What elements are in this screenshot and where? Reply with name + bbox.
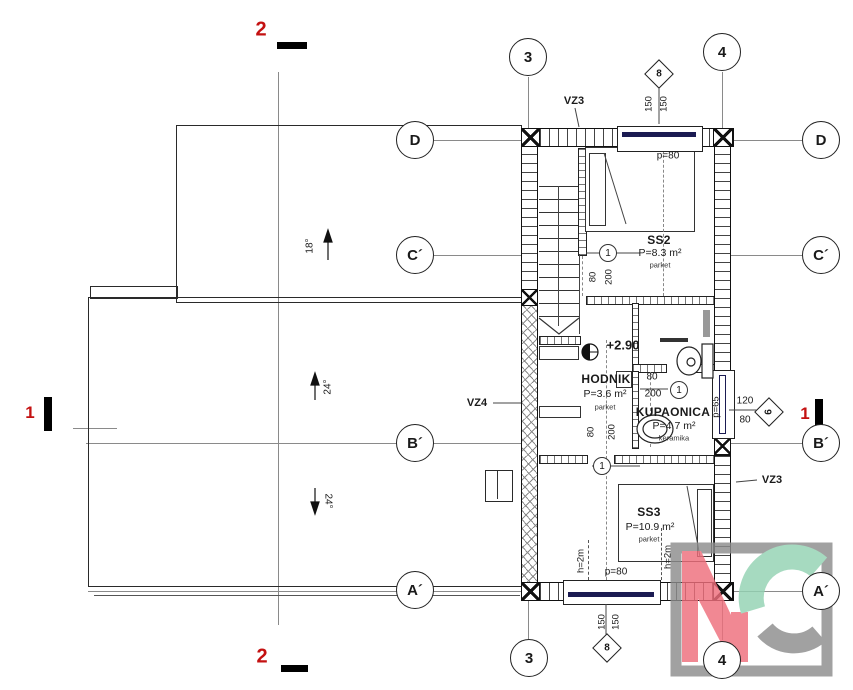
partition-ss3-north-b [614, 455, 716, 464]
dim-150-top-b: 150 [659, 96, 670, 112]
stair-edge-line [579, 254, 580, 334]
grid-bubble-C-right: C´ [802, 236, 840, 274]
grid-bubble-C-left: C´ [396, 236, 434, 274]
partition-ss2-south [586, 296, 716, 305]
door-mark-1-kupaonica: 1 [670, 381, 688, 399]
window-mark-label: 8 [650, 65, 669, 84]
staircase-centerline [558, 186, 559, 326]
grid-bubble-A-left: A´ [396, 571, 434, 609]
wall-junction-w [521, 289, 538, 306]
grid-bubble-label: 3 [525, 650, 533, 667]
wall-west-stone-vz4 [521, 304, 538, 584]
grid-bubble-label: 4 [718, 652, 726, 669]
wall-west-upper [521, 146, 538, 291]
grid-bubble-label: C´ [813, 247, 829, 264]
chimney-box [485, 470, 513, 502]
room-floor-hodnik: parket [595, 403, 616, 412]
chimney-divider [497, 471, 498, 499]
staircase-treads [539, 186, 579, 322]
wall-label-vz3-right: VZ3 [762, 474, 782, 486]
slope-label-24-top: 24° [323, 379, 334, 394]
grid-bubble-4-bottom: 4 [703, 641, 741, 679]
window-top [617, 126, 703, 152]
room-name-kupaonica: KUPAONICA [636, 405, 710, 419]
window-top-glass-band [622, 132, 696, 137]
h2m-line-left [588, 540, 589, 580]
dim-150-bottom-b: 150 [611, 614, 622, 630]
window-mark-8-bottom: 8 [592, 633, 622, 663]
window-mark-label: 8 [598, 639, 617, 658]
roof-outline-upper [176, 125, 522, 303]
room-area-ss2: P=8.3 m² [639, 247, 682, 259]
section-2-label-bottom: 2 [256, 646, 267, 669]
roof-eave-line [94, 595, 520, 596]
grid-bubble-A-right: A´ [802, 572, 840, 610]
hodnik-cabinet-a [539, 346, 579, 360]
wall-east-lower [714, 455, 731, 584]
grid-bubble-3-top: 3 [509, 38, 547, 76]
partition-ss3-north-a [539, 455, 588, 464]
grid-bubble-label: 3 [524, 49, 532, 66]
section-2-label-top: 2 [255, 19, 266, 42]
section-1-label-left: 1 [25, 403, 34, 423]
section-1-tick-left [44, 397, 52, 431]
room-name-ss3: SS3 [637, 505, 661, 519]
axis-window-top [663, 150, 664, 296]
floor-plan-canvas: 2 2 1 1 3 4 3 4 D D C´ C´ B´ B´ A´ A´ 8 … [0, 0, 853, 690]
dim-120-right: 120 [737, 396, 754, 407]
bed-ss3-pillow [697, 489, 712, 557]
dim-door-ss2-width: 80 [588, 272, 599, 283]
bed-ss2-pillow [589, 153, 606, 226]
grid-bubble-B-right: B´ [802, 424, 840, 462]
window-mark-label: 6 [760, 403, 779, 422]
wall-junction-nw [521, 128, 540, 147]
window-mark-8-top: 8 [644, 59, 674, 89]
hodnik-cabinet-b [539, 406, 581, 418]
dim-h2m-right: h=2m [663, 545, 674, 569]
wall-junction-sw [521, 582, 540, 601]
section-2-tick-top [277, 42, 307, 49]
grid-bubble-4-top: 4 [703, 33, 741, 71]
dim-door-ss3-width: 80 [586, 427, 597, 438]
window-bottom-glass-band [568, 592, 654, 597]
roof-outline-lower [88, 297, 522, 587]
logo-letter-c-bottom [765, 630, 819, 643]
door-mark-label: 1 [605, 248, 611, 259]
dim-h2m-left: h=2m [576, 549, 587, 573]
grid-bubble-label: C´ [407, 247, 423, 264]
dim-door-bath-width: 80 [646, 372, 657, 383]
grid-bubble-label: 4 [718, 44, 726, 61]
door-mark-1-ss3: 1 [593, 457, 611, 475]
section-2-tick-bottom [281, 665, 308, 672]
room-floor-ss3: parket [639, 535, 660, 544]
dim-door-ss2-height: 200 [604, 269, 615, 285]
dim-parapet-right: p=65 [711, 396, 722, 417]
grid-bubble-B-left: B´ [396, 424, 434, 462]
door-mark-label: 1 [599, 461, 605, 472]
door-mark-label: 1 [676, 385, 682, 396]
wall-junction-e [714, 437, 731, 455]
section-1-label-right: 1 [800, 404, 809, 424]
grid-bubble-label: D [816, 132, 827, 149]
elevation-label: +2.90 [607, 338, 640, 353]
door-ss2-swing-axis [582, 256, 583, 296]
grid-bubble-D-left: D [396, 121, 434, 159]
grid-bubble-label: A´ [407, 582, 423, 599]
wall-label-vz4: VZ4 [467, 397, 487, 409]
room-name-ss2: SS2 [647, 233, 671, 247]
door-mark-1-ss2: 1 [599, 244, 617, 262]
window-mark-6-right: 6 [754, 397, 784, 427]
dim-parapet-top: p=80 [657, 151, 680, 162]
wall-label-vz3-top: VZ3 [564, 95, 584, 107]
slope-label-24-bottom: 24° [323, 493, 334, 508]
grid-bubble-label: B´ [813, 435, 829, 452]
grid-bubble-label: B´ [407, 435, 423, 452]
grid-bubble-D-right: D [802, 121, 840, 159]
shower-partition-bar [660, 338, 688, 342]
room-floor-ss2: parket [650, 261, 671, 270]
wall-junction-ne [713, 128, 733, 147]
grid-bubble-label: A´ [813, 583, 829, 600]
room-name-hodnik: HODNIK [581, 372, 630, 386]
room-area-hodnik: P=3.6 m² [584, 388, 627, 400]
radiator-bar [703, 310, 710, 337]
dim-parapet-bottom: p=80 [605, 567, 628, 578]
dim-door-bath-height: 200 [645, 389, 662, 400]
dim-door-ss3-height: 200 [607, 424, 618, 440]
dim-80-right: 80 [739, 415, 750, 426]
room-floor-kupaonica: keramika [659, 434, 689, 443]
partition-niche-west [632, 303, 639, 366]
dim-150-bottom-a: 150 [597, 614, 608, 630]
grid-bubble-3-bottom: 3 [510, 639, 548, 677]
wall-east-upper [714, 146, 731, 372]
slope-label-18: 18° [305, 238, 316, 253]
wall-junction-se [713, 582, 733, 601]
room-area-ss3: P=10.9 m² [626, 521, 675, 533]
grid-bubble-label: D [410, 132, 421, 149]
room-area-kupaonica: P=4.7 m² [653, 420, 696, 432]
dim-150-top-a: 150 [644, 96, 655, 112]
partition-under-stairs [539, 336, 581, 345]
